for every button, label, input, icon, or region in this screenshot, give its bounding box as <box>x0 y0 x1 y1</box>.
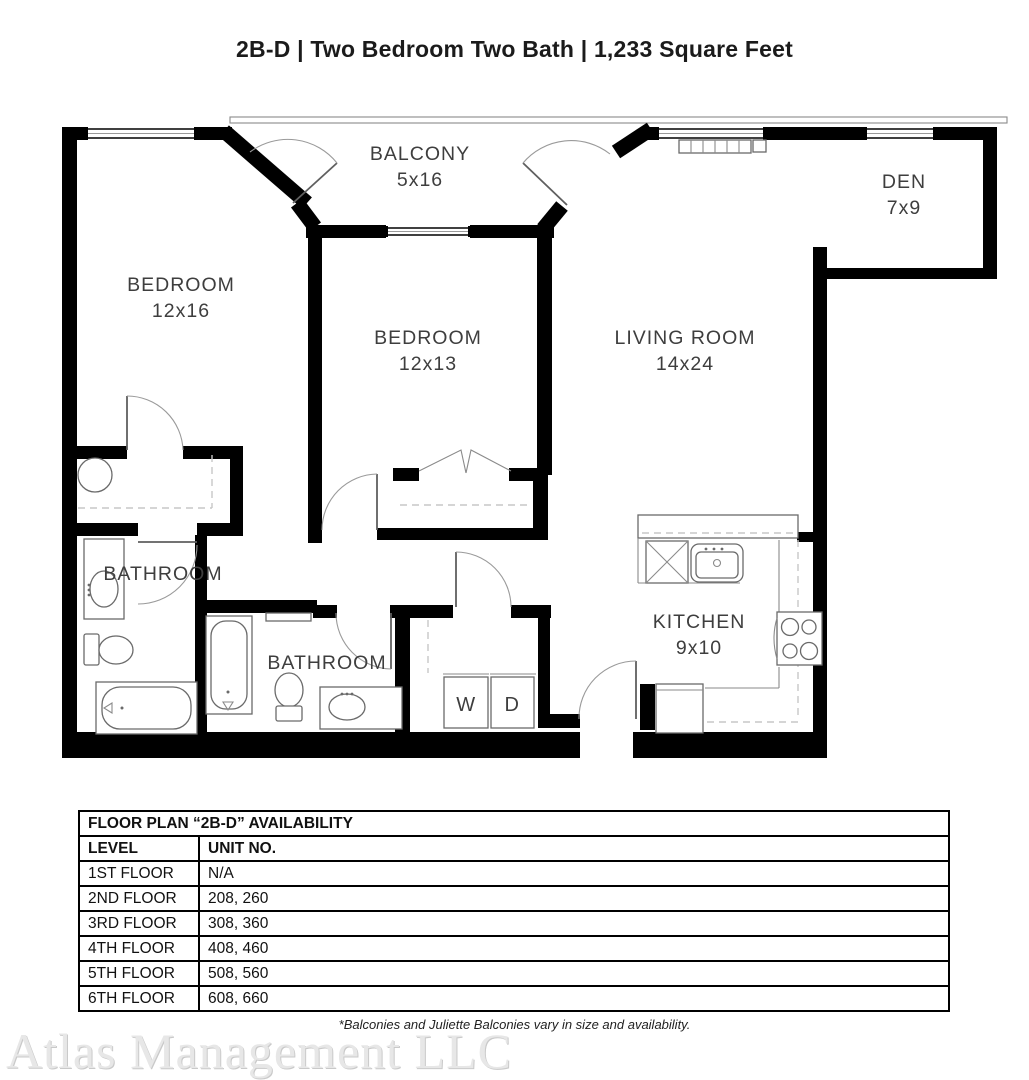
level-cell: 1ST FLOOR <box>79 861 199 886</box>
room-label-livingroom: LIVING ROOM <box>614 327 755 349</box>
availability-table: FLOOR PLAN “2B-D” AVAILABILITY LEVEL UNI… <box>78 810 950 1012</box>
table-title: FLOOR PLAN “2B-D” AVAILABILITY <box>79 811 949 836</box>
washer-label: W <box>456 694 475 716</box>
table-row: 2ND FLOOR 208, 260 <box>79 886 949 911</box>
closet-bifold-doors <box>419 450 511 473</box>
balcony-disclaimer-note: *Balconies and Juliette Balconies vary i… <box>0 1017 1029 1032</box>
room-dims-balcony: 5x16 <box>397 169 443 191</box>
level-cell: 5TH FLOOR <box>79 961 199 986</box>
unit-cell: N/A <box>199 861 949 886</box>
door-bedroom1 <box>127 396 183 450</box>
room-dims-bedroom2: 12x13 <box>399 353 457 375</box>
level-cell: 4TH FLOOR <box>79 936 199 961</box>
table-header-row: LEVEL UNIT NO. <box>79 836 949 861</box>
bathtub <box>96 682 197 734</box>
kitchen-sink <box>691 544 743 582</box>
closet-fixture <box>78 458 112 492</box>
bathroom2-vanity-sink <box>320 687 402 729</box>
table-row: 4TH FLOOR 408, 460 <box>79 936 949 961</box>
table-row: 5TH FLOOR 508, 560 <box>79 961 949 986</box>
unit-cell: 508, 560 <box>199 961 949 986</box>
room-label-den: DEN <box>882 171 926 193</box>
room-dims-livingroom: 14x24 <box>656 353 714 375</box>
window <box>655 127 767 140</box>
level-cell: 2ND FLOOR <box>79 886 199 911</box>
medicine-cabinet <box>266 613 311 621</box>
level-cell: 6TH FLOOR <box>79 986 199 1011</box>
balcony-railing <box>230 117 1007 123</box>
dishwasher <box>646 541 688 583</box>
column-header-level: LEVEL <box>79 836 199 861</box>
column-header-unit-no: UNIT NO. <box>199 836 949 861</box>
window <box>863 127 937 140</box>
table-row: 1ST FLOOR N/A <box>79 861 949 886</box>
door-livingroom-balcony <box>523 141 610 205</box>
room-label-balcony: BALCONY <box>370 143 470 165</box>
room-label-bedroom1: BEDROOM <box>127 274 235 296</box>
refrigerator <box>656 684 703 733</box>
room-label-kitchen: KITCHEN <box>653 611 746 633</box>
table-row: 3RD FLOOR 308, 360 <box>79 911 949 936</box>
window <box>384 226 472 237</box>
room-dims-den: 7x9 <box>887 197 921 219</box>
unit-cell: 408, 460 <box>199 936 949 961</box>
unit-cell: 608, 660 <box>199 986 949 1011</box>
table-row: 6TH FLOOR 608, 660 <box>79 986 949 1011</box>
window <box>84 127 198 140</box>
level-cell: 3RD FLOOR <box>79 911 199 936</box>
toilet <box>275 673 303 721</box>
room-label-bedroom2: BEDROOM <box>374 327 482 349</box>
toilet <box>84 634 133 665</box>
room-label-bathroom2: BATHROOM <box>267 652 386 674</box>
unit-cell: 308, 360 <box>199 911 949 936</box>
door-hallway <box>456 552 511 607</box>
stove <box>774 612 822 665</box>
bathtub <box>206 616 252 714</box>
room-dims-kitchen: 9x10 <box>676 637 722 659</box>
table-title-row: FLOOR PLAN “2B-D” AVAILABILITY <box>79 811 949 836</box>
room-dims-bedroom1: 12x16 <box>152 300 210 322</box>
door-bedroom2 <box>322 474 377 530</box>
unit-cell: 208, 260 <box>199 886 949 911</box>
room-label-bathroom1: BATHROOM <box>103 563 222 585</box>
wall-heater-grille <box>679 140 766 153</box>
door-entry <box>579 661 636 719</box>
dryer-label: D <box>505 694 520 716</box>
